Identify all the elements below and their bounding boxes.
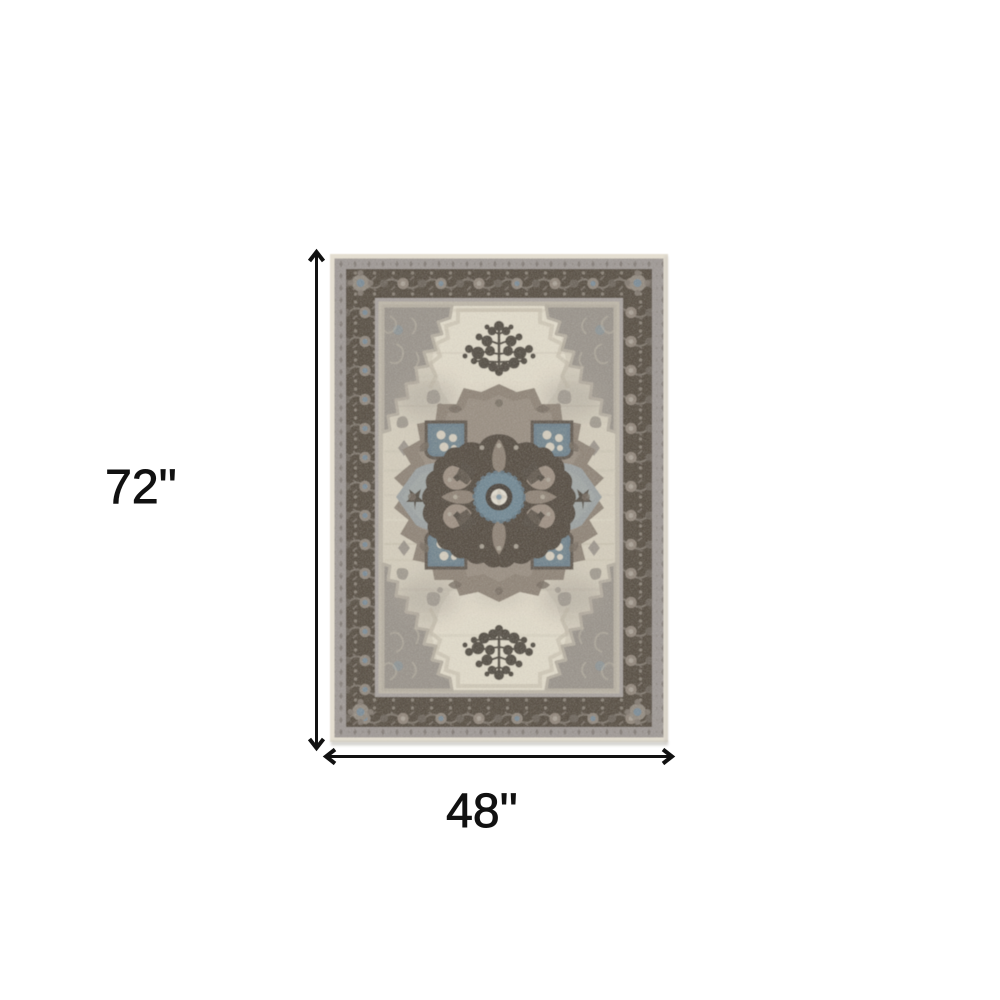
- svg-text:72'': 72'': [105, 461, 177, 514]
- svg-text:48'': 48'': [446, 785, 518, 838]
